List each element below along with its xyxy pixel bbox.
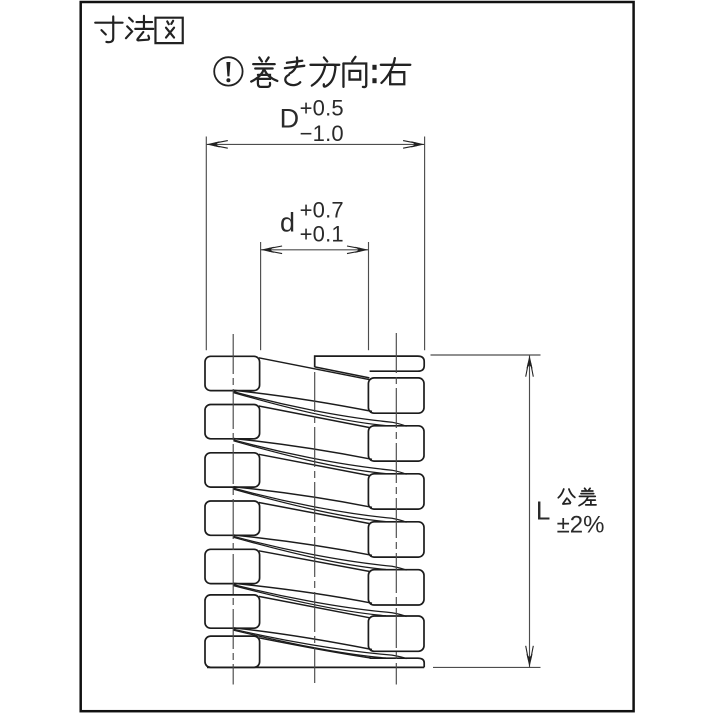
svg-text:D: D	[280, 103, 300, 133]
svg-text:+0.7: +0.7	[300, 197, 344, 222]
svg-text:+0.1: +0.1	[300, 221, 344, 246]
svg-text:d: d	[280, 208, 295, 238]
svg-text:+0.5: +0.5	[300, 96, 344, 121]
svg-text:−1.0: −1.0	[300, 121, 344, 146]
svg-text:L: L	[536, 496, 550, 526]
svg-text:±2%: ±2%	[557, 512, 605, 539]
